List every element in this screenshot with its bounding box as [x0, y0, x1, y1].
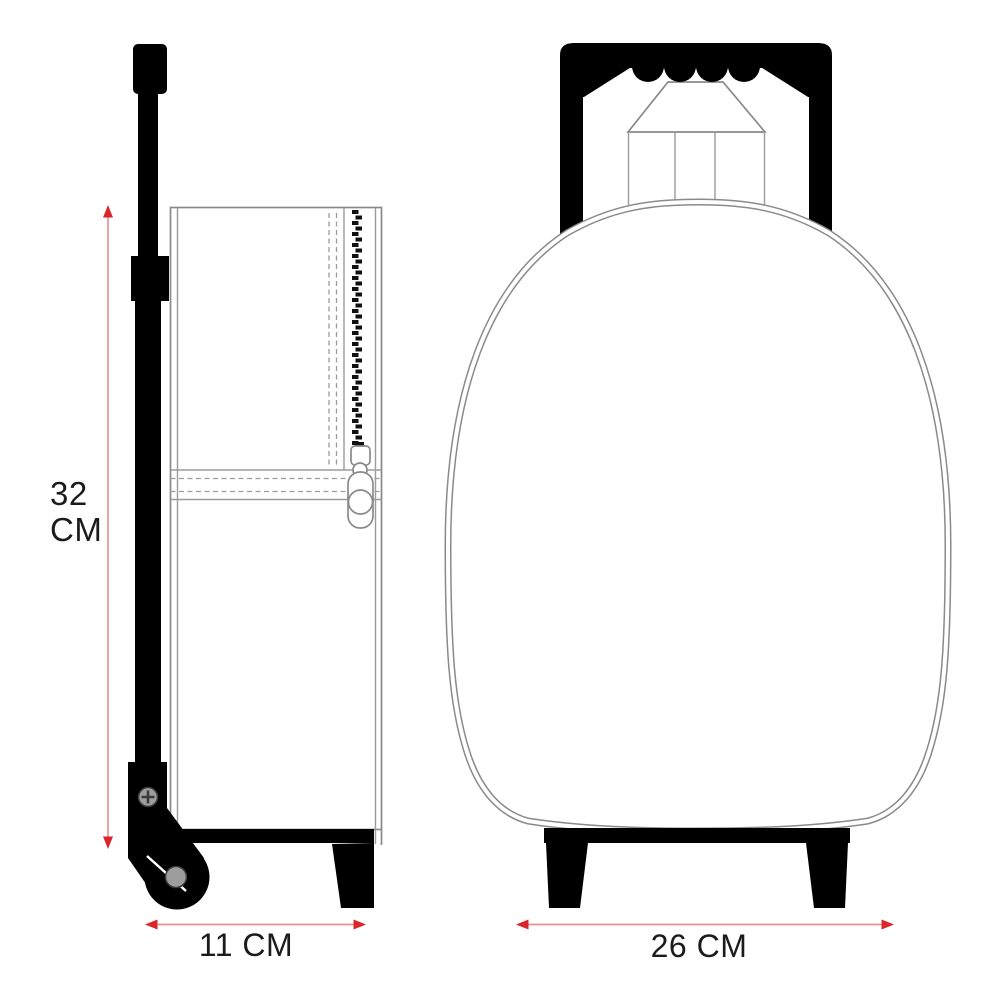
- base-bar: [544, 828, 850, 843]
- trolley-center-mount: [628, 82, 765, 217]
- front-view: [448, 43, 948, 908]
- zipper-teeth: [352, 209, 362, 447]
- pole-lower: [135, 298, 161, 770]
- diagram-canvas: 32 CM 11 CM 26 CM: [0, 0, 1000, 1000]
- height-value: 32: [50, 476, 120, 512]
- zipper-slider: [351, 446, 370, 465]
- arrow-right-icon: [354, 920, 367, 930]
- bracket-screw: [139, 788, 158, 807]
- zipper-pull: [348, 442, 373, 528]
- height-unit: CM: [50, 512, 120, 548]
- telescopic-handle: [131, 44, 169, 770]
- rear-foot: [332, 843, 374, 908]
- front-base: [544, 828, 850, 908]
- arrow-right-icon: [882, 920, 895, 930]
- arrow-up-icon: [103, 205, 113, 218]
- mount-cap: [628, 82, 765, 132]
- pole-collar: [131, 256, 169, 301]
- arrow-left-icon: [145, 920, 158, 930]
- depth-dimension-label: 11 CM: [188, 927, 304, 964]
- arrow-left-icon: [516, 920, 529, 930]
- height-dimension-label: 32 CM: [50, 476, 120, 548]
- backpack-body-side: [171, 208, 382, 846]
- zipper-tab-hole: [349, 490, 373, 514]
- backpack-body-front: [448, 202, 948, 831]
- handle-grip: [133, 44, 167, 94]
- pole-upper: [138, 88, 158, 260]
- wheel-hub: [166, 867, 187, 888]
- width-dimension-label: 26 CM: [640, 928, 758, 965]
- dimension-diagram: [0, 0, 1000, 1000]
- side-view: [128, 44, 382, 910]
- side-base-bar: [168, 829, 374, 843]
- left-foot: [546, 843, 588, 908]
- arrow-down-icon: [103, 837, 113, 850]
- right-foot: [806, 843, 848, 908]
